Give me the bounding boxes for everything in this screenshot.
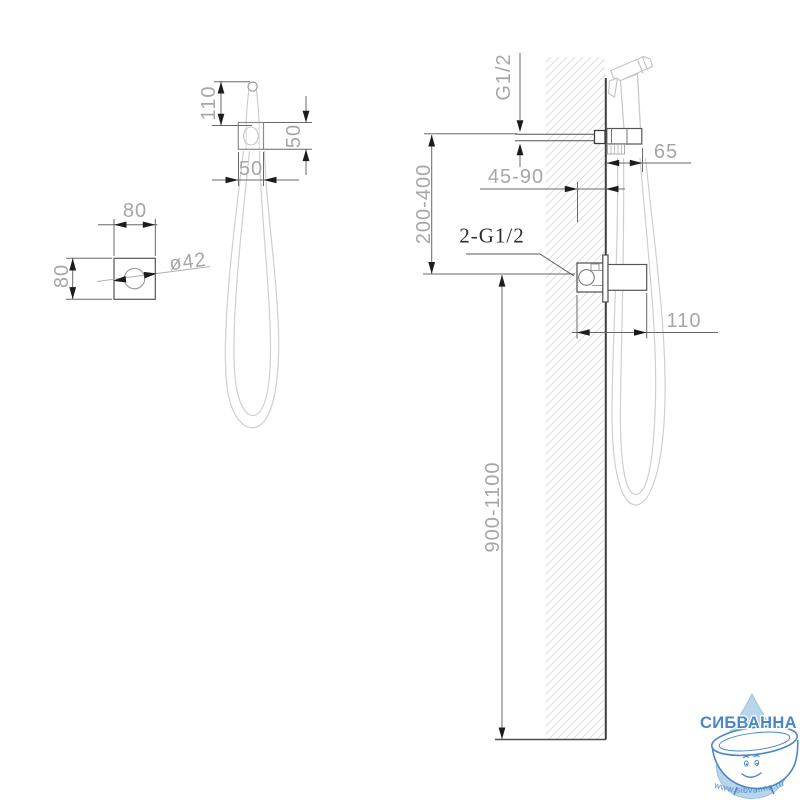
sprayer-ball-joint — [248, 82, 257, 91]
valve-face-plate — [603, 255, 608, 302]
technical-drawing-page: СИБВАННА www.sibvanna.ru 110 50 50 80 80… — [0, 0, 800, 800]
dim-depth-200-400: 200-400 — [414, 164, 434, 244]
dim-holder-height-110: 110 — [199, 86, 219, 121]
label-connections-2-g12: 2-G1/2 — [459, 226, 525, 247]
watermark-logo: СИБВАННА www.sibvanna.ru — [700, 694, 799, 799]
installation-drawing-svg: СИБВАННА www.sibvanna.ru — [0, 0, 800, 800]
dim-height-900-1100: 900-1100 — [483, 461, 503, 552]
valve-trim-box — [608, 265, 647, 291]
wall-hatch — [546, 57, 605, 740]
dim-holder-offset-65: 65 — [654, 142, 678, 162]
dim-holder-width-50: 50 — [239, 159, 263, 179]
wall-holder-bracket — [607, 129, 642, 145]
wall-section — [495, 57, 606, 740]
shower-hose-loop-left — [225, 151, 278, 428]
hose-nut — [608, 145, 625, 155]
watermark-brand-text: СИБВАННА — [700, 714, 797, 732]
dim-valve-width-110: 110 — [667, 311, 702, 331]
dim-inlet-thread-g12: G1/2 — [494, 53, 514, 100]
holder-side-view — [238, 82, 263, 150]
dim-plate-height-80: 80 — [52, 264, 72, 288]
pipe-wall-fitting — [595, 131, 606, 144]
sprayer-silhouette-front — [609, 57, 653, 130]
dim-holder-depth-50: 50 — [284, 124, 304, 148]
wall-plate-hole — [124, 268, 144, 288]
dim-wall-offset-45-90: 45-90 — [488, 167, 544, 187]
dim-plate-width-80: 80 — [123, 201, 147, 221]
dim-plate-diameter-42: ø42 — [168, 250, 208, 274]
